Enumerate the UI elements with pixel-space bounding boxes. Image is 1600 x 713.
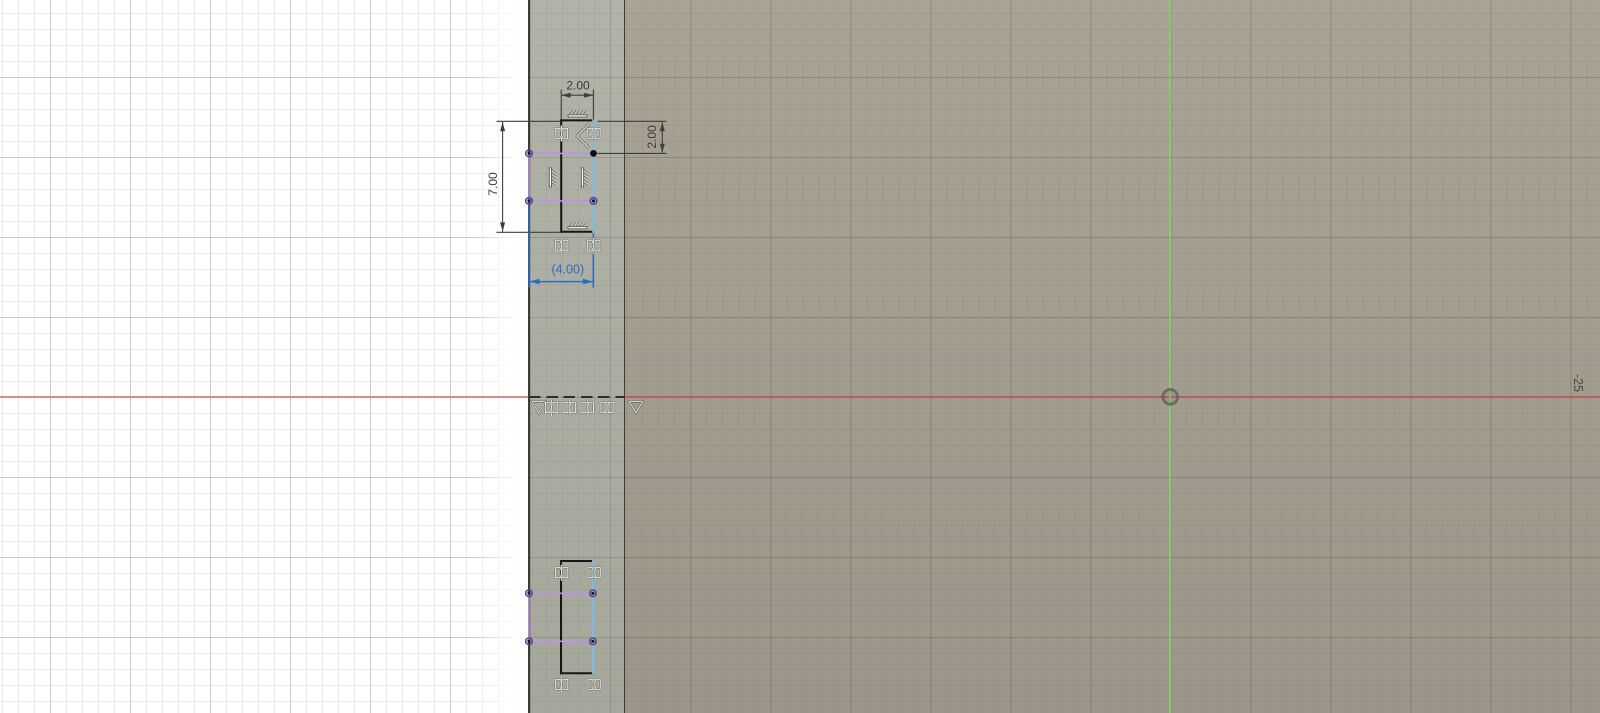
svg-text:(4.00): (4.00) xyxy=(551,262,584,276)
svg-text:2.00: 2.00 xyxy=(645,125,659,149)
svg-text:7.00: 7.00 xyxy=(486,172,500,196)
svg-text:2.00: 2.00 xyxy=(566,79,590,93)
